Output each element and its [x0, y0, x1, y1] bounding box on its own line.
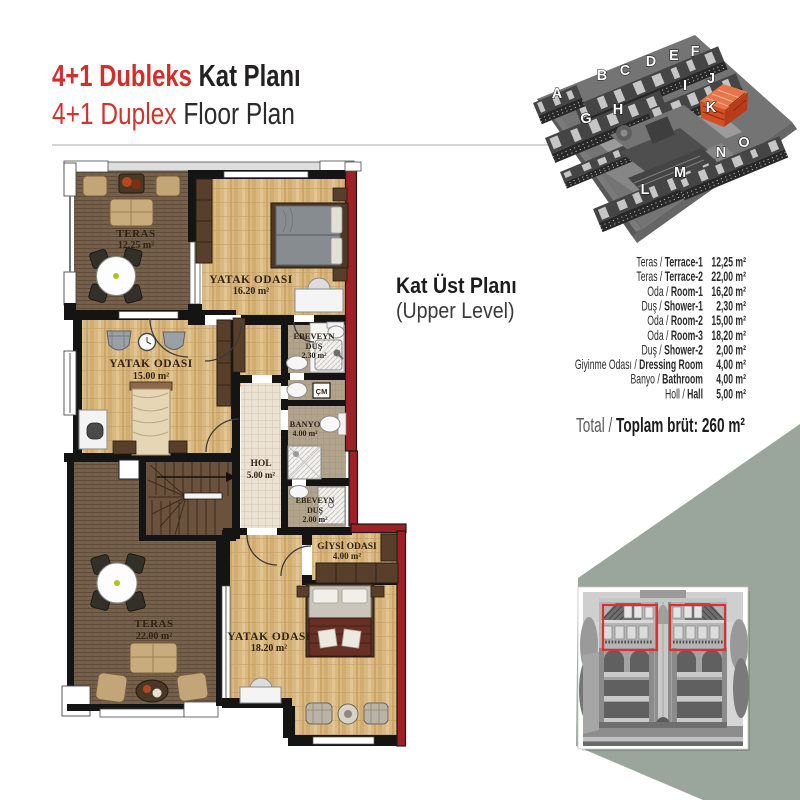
svg-text:12.25 m²: 12.25 m²: [118, 240, 154, 251]
svg-text:5.00 m²: 5.00 m²: [247, 470, 275, 480]
svg-text:22.00 m²: 22.00 m²: [136, 631, 172, 642]
svg-text:I: I: [683, 78, 687, 94]
svg-text:A: A: [552, 86, 563, 102]
svg-text:Holl / Hall: Holl / Hall: [665, 388, 703, 402]
svg-text:Banyo / Bathroom: Banyo / Bathroom: [631, 373, 703, 387]
svg-text:22,00 m²: 22,00 m²: [711, 270, 746, 284]
svg-text:BANYO: BANYO: [290, 419, 321, 429]
svg-text:2,30 m²: 2,30 m²: [716, 300, 746, 314]
svg-text:18.20 m²: 18.20 m²: [251, 643, 287, 654]
svg-text:K: K: [706, 100, 717, 116]
svg-text:4.00 m²: 4.00 m²: [333, 551, 361, 561]
svg-text:ÇM: ÇM: [316, 387, 328, 396]
svg-text:(Upper Level): (Upper Level): [396, 299, 515, 323]
svg-text:B: B: [597, 68, 607, 84]
svg-text:16.20 m²: 16.20 m²: [233, 286, 269, 297]
svg-text:Oda / Room-3: Oda / Room-3: [647, 329, 703, 343]
svg-text:H: H: [613, 102, 623, 118]
svg-text:Teras / Terrace-2: Teras / Terrace-2: [636, 270, 703, 284]
svg-text:4,00 m²: 4,00 m²: [716, 373, 746, 387]
svg-text:2,00 m²: 2,00 m²: [716, 344, 746, 358]
svg-text:15.00 m²: 15.00 m²: [133, 371, 169, 382]
svg-text:4.00 m²: 4.00 m²: [292, 429, 318, 438]
svg-text:HOL: HOL: [250, 459, 271, 469]
svg-text:15,00 m²: 15,00 m²: [711, 314, 746, 328]
svg-text:O: O: [738, 135, 749, 151]
svg-text:Duş / Shower-1: Duş / Shower-1: [642, 300, 703, 314]
svg-text:Duş / Shower-2: Duş / Shower-2: [642, 344, 703, 358]
svg-text:G: G: [580, 111, 591, 127]
svg-text:L: L: [641, 182, 650, 198]
svg-text:F: F: [691, 44, 700, 60]
svg-text:12,25 m²: 12,25 m²: [711, 256, 746, 270]
svg-text:DUŞ: DUŞ: [305, 341, 322, 351]
svg-text:2.30 m²: 2.30 m²: [301, 351, 327, 360]
svg-text:4+1 Duplex Floor Plan: 4+1 Duplex Floor Plan: [52, 96, 295, 130]
svg-text:YATAK ODASI: YATAK ODASI: [109, 358, 193, 370]
svg-text:D: D: [646, 54, 656, 70]
svg-text:E: E: [669, 48, 679, 64]
svg-text:4+1 Dubleks Kat Planı: 4+1 Dubleks Kat Planı: [52, 58, 301, 93]
svg-text:TERAS: TERAS: [134, 618, 173, 630]
svg-text:J: J: [707, 71, 715, 87]
svg-text:YATAK ODASI: YATAK ODASI: [209, 274, 293, 286]
svg-text:Giyinme Odası / Dressing Room: Giyinme Odası / Dressing Room: [575, 358, 703, 372]
svg-text:4,00 m²: 4,00 m²: [716, 358, 746, 372]
svg-text:Total / Toplam brüt: 260 m²: Total / Toplam brüt: 260 m²: [576, 414, 745, 436]
svg-text:YATAK ODASI: YATAK ODASI: [227, 631, 311, 643]
svg-text:DUŞ: DUŞ: [307, 506, 324, 515]
svg-text:Teras / Terrace-1: Teras / Terrace-1: [636, 256, 703, 270]
svg-text:2.00 m²: 2.00 m²: [302, 515, 328, 524]
svg-text:16,20 m²: 16,20 m²: [711, 285, 746, 299]
svg-text:C: C: [620, 63, 631, 79]
svg-text:TERAS: TERAS: [116, 228, 155, 240]
svg-text:EBEVEYN: EBEVEYN: [296, 496, 335, 505]
svg-text:18,20 m²: 18,20 m²: [711, 329, 746, 343]
svg-text:Kat Üst Planı: Kat Üst Planı: [396, 274, 517, 298]
svg-text:N: N: [716, 145, 726, 161]
svg-text:Oda / Room-2: Oda / Room-2: [647, 314, 703, 328]
svg-text:M: M: [674, 165, 686, 181]
svg-text:5,00 m²: 5,00 m²: [716, 388, 746, 402]
svg-text:Oda / Room-1: Oda / Room-1: [647, 285, 703, 299]
svg-text:EBEVEYN: EBEVEYN: [293, 331, 335, 341]
